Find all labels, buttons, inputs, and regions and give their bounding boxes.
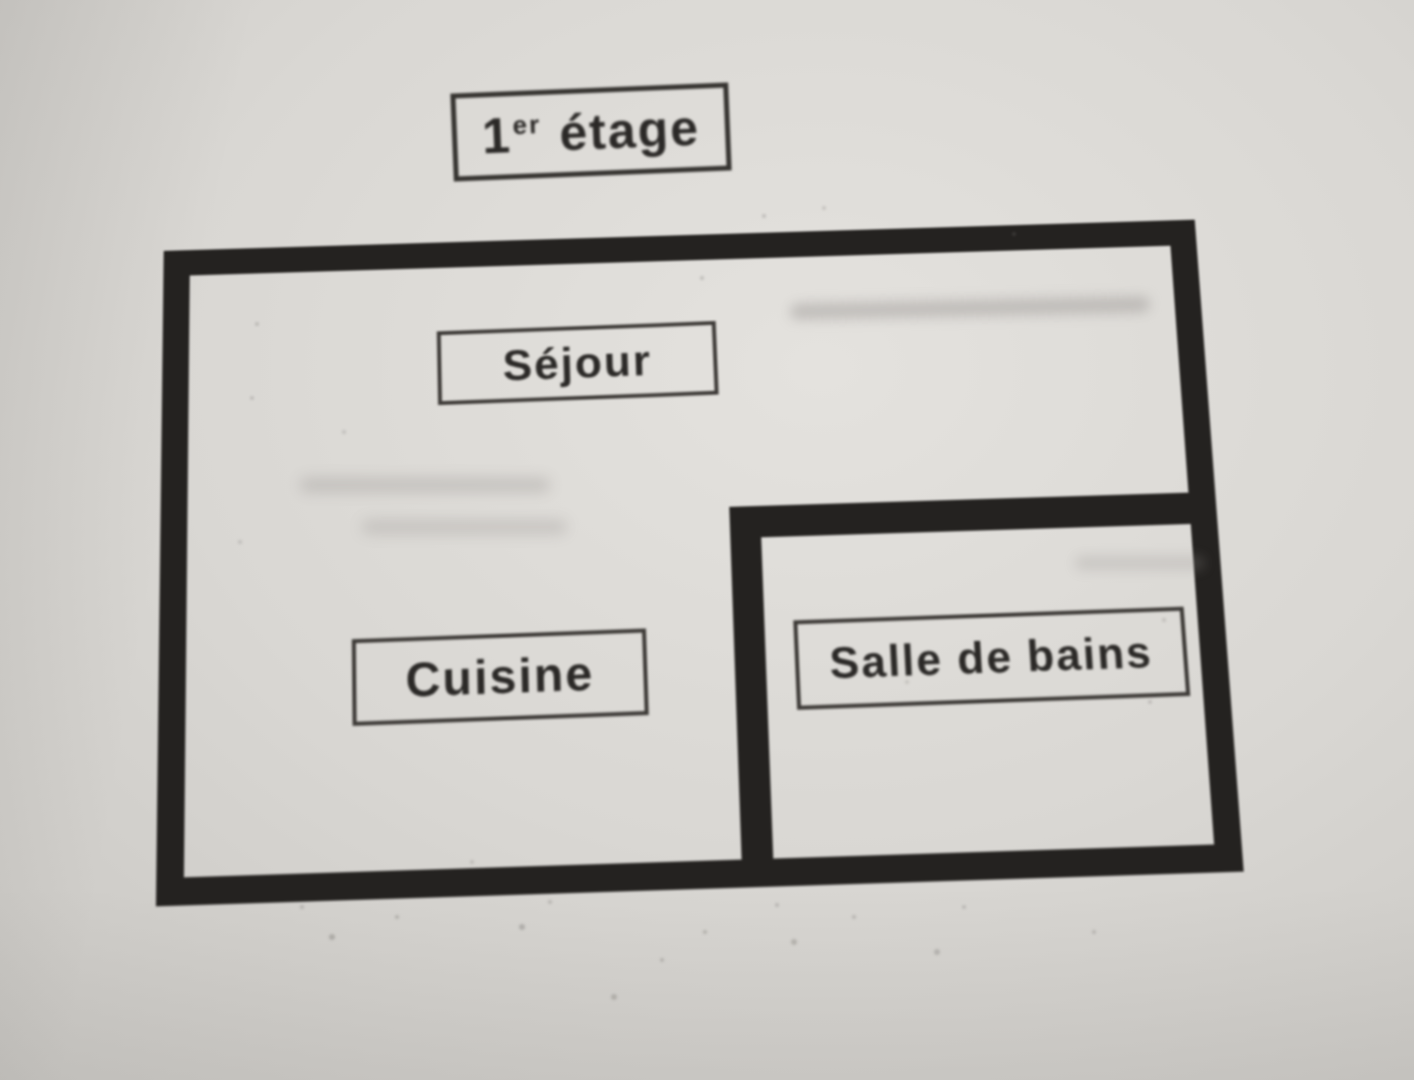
room-label-cuisine: Cuisine — [352, 628, 649, 725]
room-label-sejour: Séjour — [437, 321, 719, 405]
floor-plan-outer-wall: Séjour Cuisine Salle de bains — [156, 220, 1244, 907]
room-name-salle-de-bains: Salle de bains — [828, 627, 1154, 688]
room-name-cuisine: Cuisine — [405, 646, 595, 708]
floor-title-box: 1er étage — [450, 82, 731, 181]
room-label-salle-de-bains: Salle de bains — [793, 607, 1190, 710]
bathroom-partition-wall-vertical — [729, 506, 773, 860]
room-name-sejour: Séjour — [502, 335, 653, 390]
floor-number: 1 — [481, 107, 513, 164]
floor-title-text: étage — [542, 100, 701, 162]
floor-plan-interior: Séjour Cuisine Salle de bains — [184, 246, 1214, 878]
floor-title: 1er étage — [481, 99, 701, 166]
photographed-paper-background: 1er étage Séjour Cuisine Salle de bains — [0, 0, 1414, 1080]
bathroom-partition-wall-horizontal — [729, 493, 1190, 539]
floor-ordinal-suffix: er — [512, 109, 542, 140]
